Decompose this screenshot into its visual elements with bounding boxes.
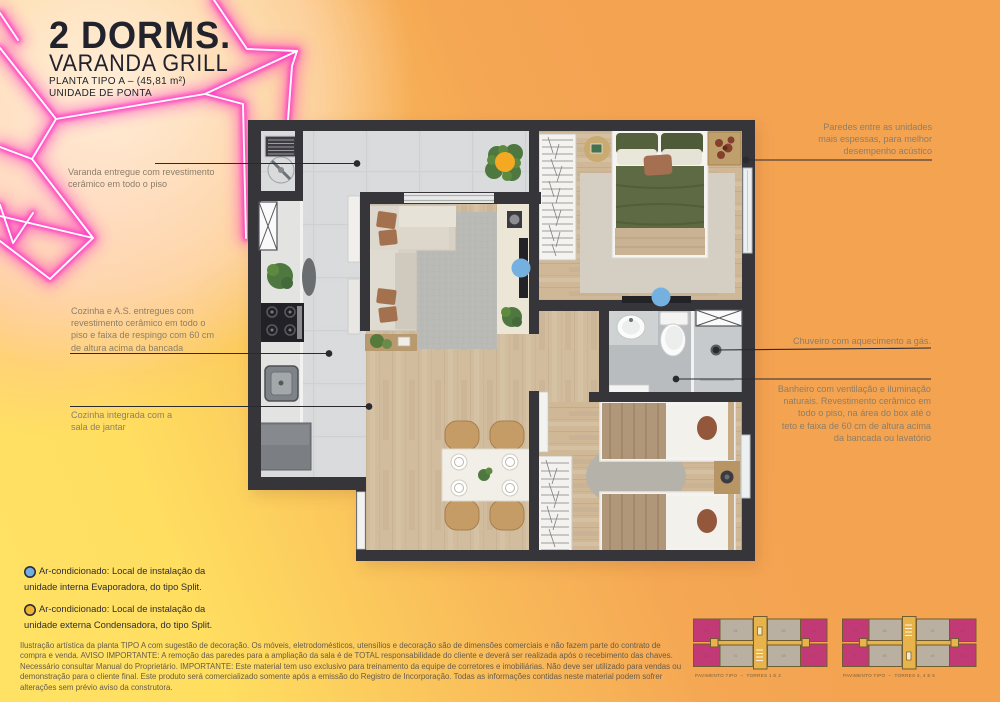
svg-text:03: 03 (961, 654, 965, 658)
svg-text:08: 08 (782, 654, 786, 658)
svg-text:02: 02 (961, 629, 965, 633)
svg-text:07: 07 (854, 629, 858, 633)
svg-text:05: 05 (883, 654, 887, 658)
svg-text:08: 08 (883, 629, 887, 633)
svg-text:01: 01 (734, 654, 738, 658)
svg-text:05: 05 (782, 629, 786, 633)
svg-text:03: 03 (705, 629, 709, 633)
svg-text:06: 06 (812, 629, 816, 633)
svg-text:01: 01 (931, 629, 935, 633)
svg-text:07: 07 (812, 654, 816, 658)
svg-text:06: 06 (854, 654, 858, 658)
svg-text:04: 04 (931, 654, 935, 658)
svg-text:02: 02 (705, 654, 709, 658)
svg-text:04: 04 (734, 629, 738, 633)
